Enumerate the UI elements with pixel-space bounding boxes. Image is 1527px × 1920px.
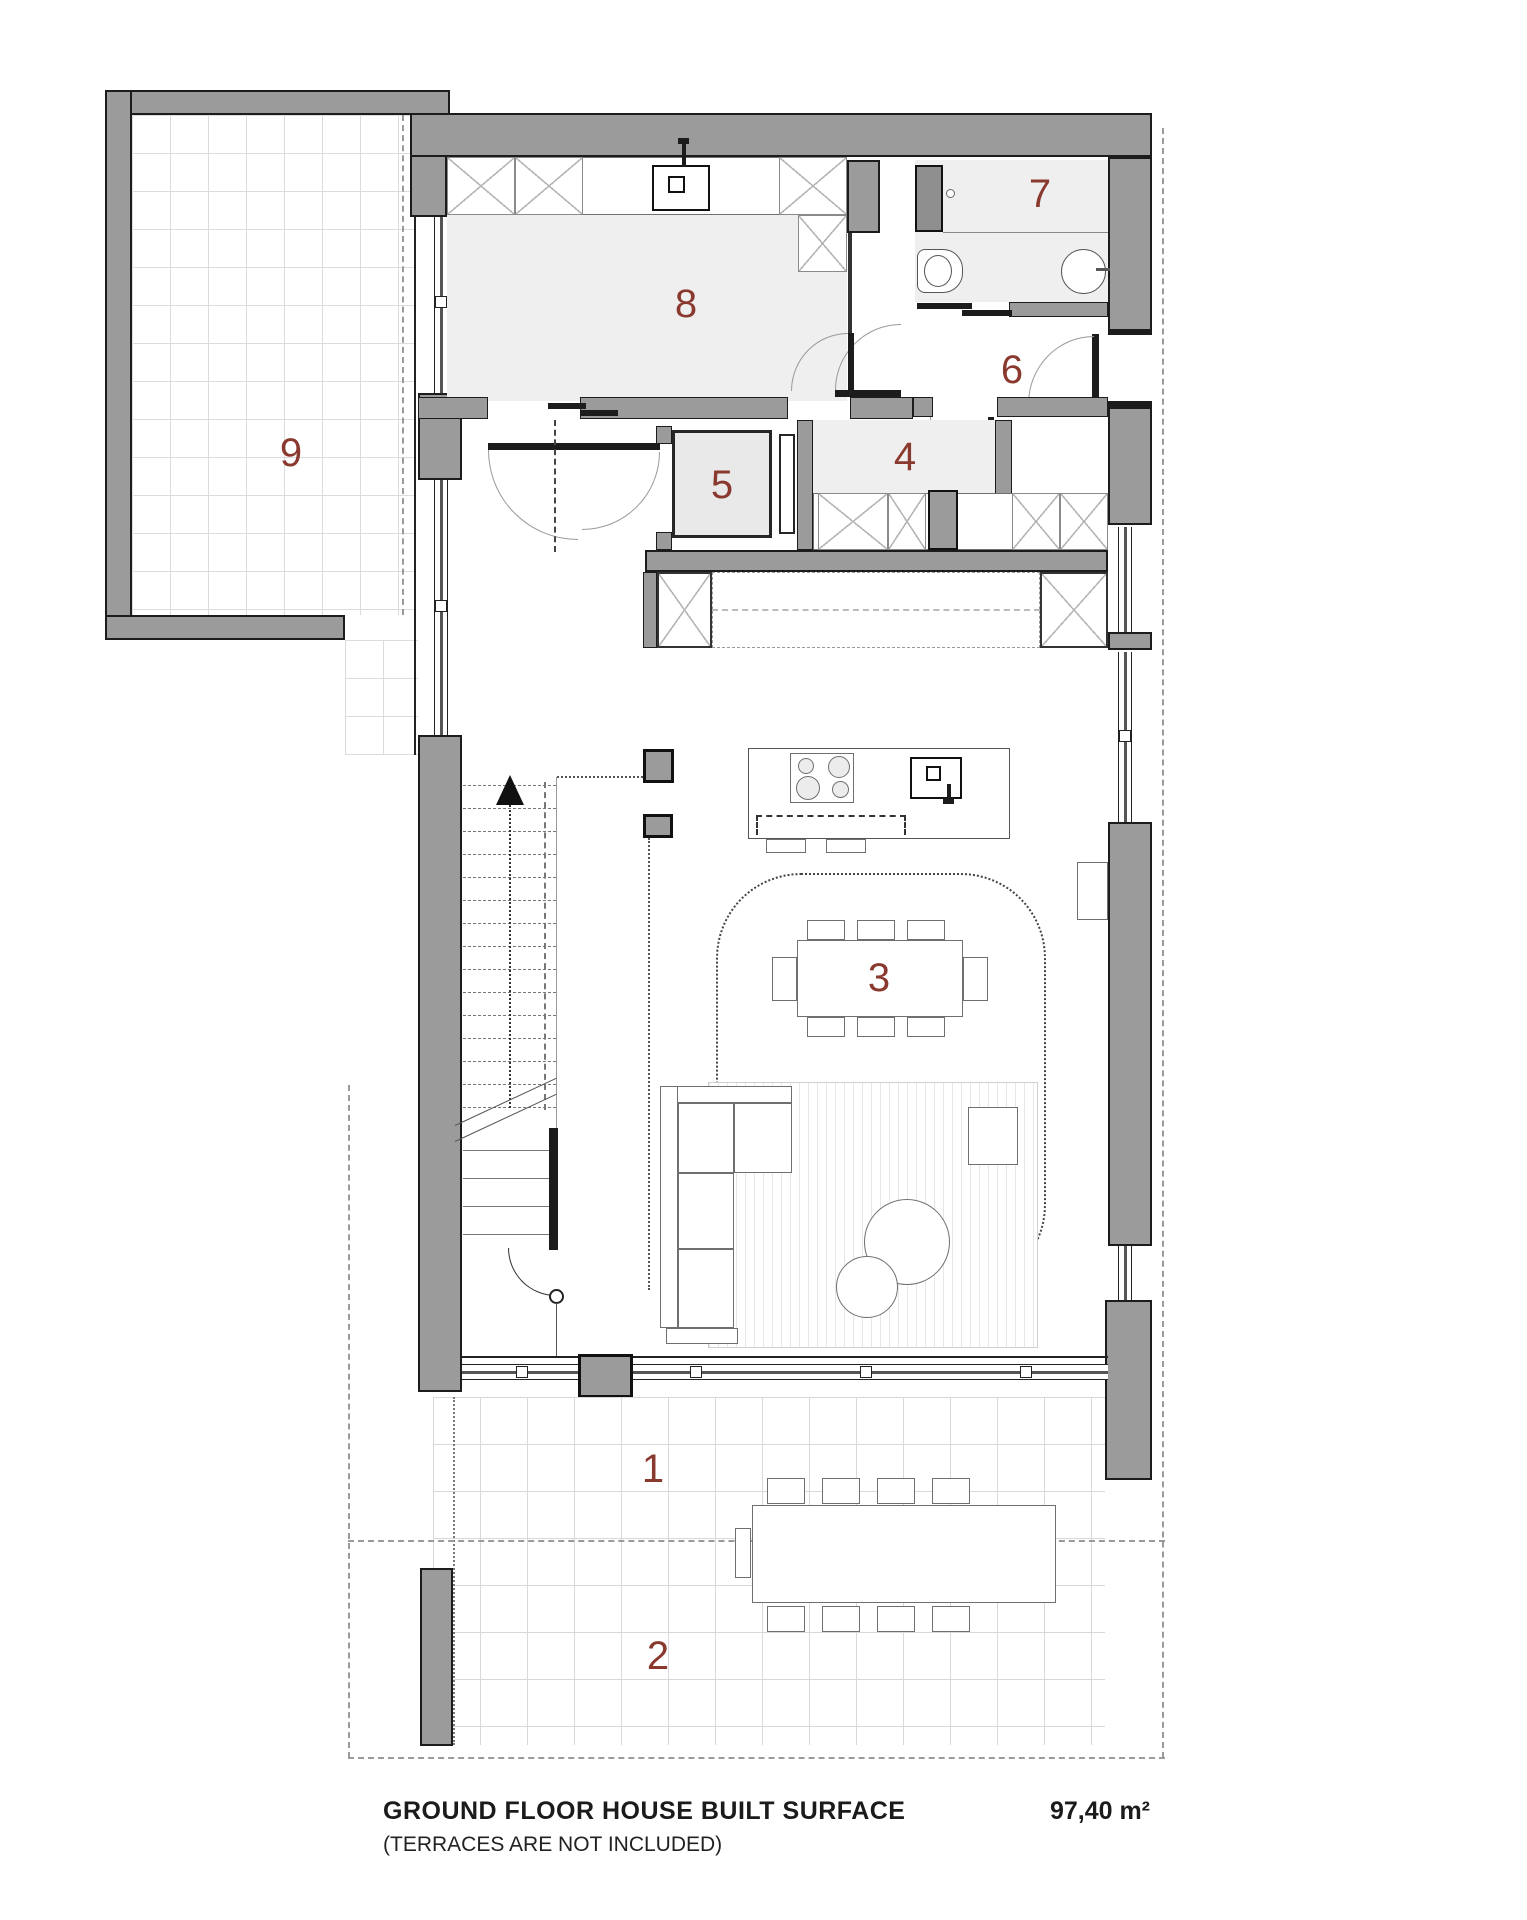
faucet-icon (682, 141, 686, 167)
door-swing-arc (582, 452, 660, 530)
chair (963, 957, 988, 1001)
caption-title: GROUND FLOOR HOUSE BUILT SURFACE (383, 1797, 905, 1826)
wall-shaft (847, 160, 880, 233)
chair (907, 920, 945, 940)
chair (877, 1606, 915, 1632)
cabinet-x (1012, 493, 1060, 550)
chair (767, 1478, 805, 1504)
wall-segment (997, 397, 1108, 417)
stair-edge (556, 777, 557, 1128)
door-swing-arc (1028, 336, 1094, 404)
room-label-7: 7 (1020, 171, 1060, 217)
wall-pier (1105, 1300, 1152, 1480)
sofa-cushion (678, 1249, 734, 1328)
boundary-dashed-line (348, 1757, 1165, 1759)
window-symbol (690, 1366, 702, 1378)
window-symbol (435, 296, 447, 308)
stool (766, 839, 806, 853)
sofa-cushion (734, 1103, 792, 1173)
chair (822, 1478, 860, 1504)
sink-drain (668, 176, 685, 193)
caption-note: (TERRACES ARE NOT INCLUDED) (383, 1833, 722, 1857)
sliding-door (917, 303, 972, 309)
burner (796, 776, 820, 800)
cabinet-x (447, 157, 515, 215)
handrail (508, 1248, 556, 1296)
sink-drain (926, 766, 941, 781)
sofa-armrest (666, 1328, 738, 1344)
wall-segment (1009, 302, 1108, 317)
sofa-back (660, 1086, 678, 1328)
wall-segment-right (1108, 822, 1152, 1246)
room-label-terrace-2: 2 (638, 1633, 678, 1679)
stair-tread (463, 1150, 556, 1151)
room-label-4: 4 (885, 434, 925, 480)
chair (857, 920, 895, 940)
outdoor-dining-table (752, 1505, 1056, 1603)
window-symbol (516, 1366, 528, 1378)
chair (772, 957, 797, 1001)
chair (857, 1017, 895, 1037)
basin-spout (1096, 268, 1110, 271)
wall-segment-right (1108, 632, 1152, 650)
chair (735, 1528, 751, 1578)
wall-segment (797, 420, 813, 550)
cabinet-x (1060, 493, 1108, 550)
counter-overhang-dashed (756, 815, 906, 835)
roof-overhang-line (402, 115, 404, 615)
wardrobe-dash-line (712, 609, 1040, 611)
chair (767, 1606, 805, 1632)
opening-dashed-line (554, 420, 556, 552)
caption-area-value: 97,40 m² (950, 1797, 1150, 1826)
room-label-terrace-9: 9 (271, 430, 311, 476)
stair-tread (463, 1206, 556, 1207)
dotted-guide-line (453, 1397, 455, 1745)
dotted-guide-line (557, 776, 643, 778)
sliding-door (962, 310, 1012, 316)
ground-floor-plan: 9 8 7 6 (0, 0, 1527, 1920)
window (1118, 1246, 1132, 1300)
cabinet-x (818, 493, 888, 550)
wall-segment (913, 397, 933, 417)
stair-tread (463, 1234, 556, 1235)
cabinet-x (798, 215, 847, 272)
sliding-door (548, 403, 586, 409)
sliding-door (580, 410, 618, 416)
stair-stringer (549, 1128, 558, 1250)
toilet-seat (924, 255, 952, 287)
window-symbol (860, 1366, 872, 1378)
boundary-dashed-line (348, 1085, 350, 1758)
shower-drain (946, 189, 955, 198)
duct-shaft (915, 165, 943, 232)
column (643, 814, 673, 838)
chair (807, 1017, 845, 1037)
console-table (1077, 862, 1108, 920)
wall-segment (418, 397, 488, 419)
chair (932, 1606, 970, 1632)
wall-face-line (462, 1356, 1108, 1358)
door-leaf-double (488, 443, 660, 450)
burner (798, 758, 814, 774)
cabinet-x (1040, 572, 1108, 648)
room-8-floor (447, 215, 847, 401)
wall-segment (645, 550, 1108, 572)
wall-segment (105, 90, 132, 640)
door-swing-arc (488, 450, 578, 540)
coffee-table (836, 1256, 898, 1318)
door-leaf (848, 333, 854, 391)
wall-pier (420, 1568, 453, 1746)
stair-path-line (509, 805, 511, 1108)
wall-segment (105, 615, 345, 640)
sofa-back (660, 1086, 792, 1103)
faucet-icon (678, 138, 689, 144)
chair (907, 1017, 945, 1037)
sofa-cushion (678, 1173, 734, 1249)
window (1118, 527, 1132, 632)
washbasin-fixture (1061, 249, 1106, 294)
stair-rail-dashed (544, 782, 546, 1110)
stair-tread (463, 1178, 556, 1179)
stool (826, 839, 866, 853)
chair (877, 1478, 915, 1504)
column (643, 749, 674, 783)
door-pocket (928, 490, 958, 550)
faucet-icon (943, 798, 954, 804)
cabinet-side-panel (643, 572, 657, 648)
chair (932, 1478, 970, 1504)
room-label-6: 6 (992, 347, 1032, 393)
terrace-9-floor-strip (345, 640, 418, 755)
shower-screen-line (943, 232, 1108, 233)
window-symbol (435, 600, 447, 612)
burner (832, 781, 849, 798)
room-label-5: 5 (702, 462, 742, 508)
window-symbol (1020, 1366, 1032, 1378)
room-label-3: 3 (859, 955, 899, 1001)
room-label-8: 8 (666, 281, 706, 327)
cabinet-x (779, 157, 847, 215)
door-jamb (1108, 329, 1152, 335)
wall-segment-right (1108, 407, 1152, 525)
wall-segment (105, 90, 450, 115)
wall-thin (848, 233, 852, 333)
room-5-panel (779, 434, 795, 534)
cabinet-x (515, 157, 583, 215)
wall-segment-top (410, 113, 1152, 157)
cabinet-x (888, 493, 926, 550)
stairs-up-arrow (496, 775, 524, 805)
boundary-dashed-line (1162, 128, 1164, 1758)
chair (807, 920, 845, 940)
wall-segment-left (418, 735, 462, 1392)
door-leaf (835, 390, 901, 397)
floor-plan-sheet: 9 8 7 6 (0, 0, 1527, 1920)
dotted-guide-line (648, 838, 650, 1290)
cabinet-x (657, 572, 712, 648)
handrail-line (556, 1303, 557, 1358)
room-label-terrace-1: 1 (633, 1446, 673, 1492)
wall-stub (656, 426, 672, 444)
sofa-cushion (678, 1103, 734, 1173)
newel-post (549, 1289, 564, 1304)
wall-pier (578, 1354, 633, 1398)
side-table (968, 1107, 1018, 1165)
wall-segment (850, 397, 913, 419)
terrace-9-floor (132, 115, 415, 615)
chair (822, 1606, 860, 1632)
wall-segment-right (1108, 157, 1152, 334)
burner (828, 756, 850, 778)
wall-stub (656, 532, 672, 550)
window-symbol (1119, 730, 1131, 742)
